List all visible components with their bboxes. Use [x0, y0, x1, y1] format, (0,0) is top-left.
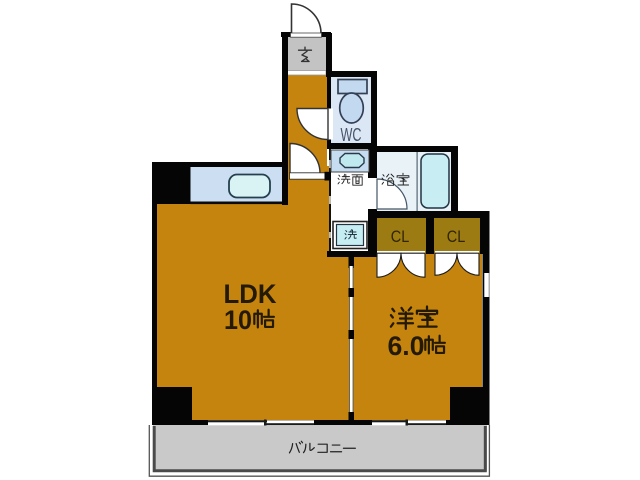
svg-text:6.0: 6.0: [388, 331, 425, 361]
svg-text:CL: CL: [447, 228, 466, 246]
svg-text:CL: CL: [391, 228, 410, 246]
svg-text:WC: WC: [341, 125, 362, 145]
svg-text:10: 10: [224, 305, 252, 335]
